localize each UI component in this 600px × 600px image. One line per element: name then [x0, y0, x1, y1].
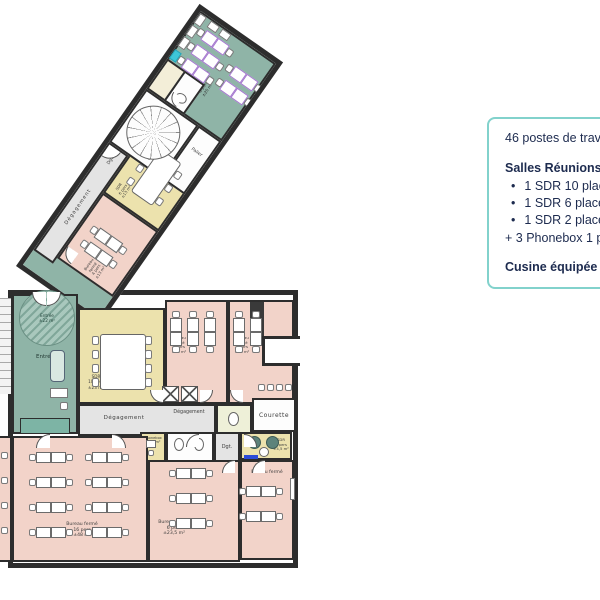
chair [206, 495, 213, 502]
meeting-room-text: 1 SDR 10 places [524, 179, 600, 193]
desk [146, 440, 156, 448]
headline: 46 postes de travail [505, 130, 600, 147]
chair [169, 495, 176, 502]
chair [92, 350, 99, 359]
shaft-box [162, 386, 179, 402]
room-courette: Courette [252, 398, 296, 432]
desk [233, 332, 245, 346]
chair [145, 378, 152, 387]
wing-block: Bureau partagé 8 pers ±25 m² Dégagement … [16, 4, 283, 325]
radiator [290, 478, 295, 500]
chair [276, 513, 283, 520]
palier-label: Palier [182, 142, 210, 164]
chair [122, 454, 129, 461]
chair [29, 454, 36, 461]
chair [29, 529, 36, 536]
toilet [174, 438, 184, 451]
corridor-label: Dégagement [94, 415, 154, 422]
desk [250, 332, 262, 346]
desk [92, 477, 107, 488]
desk [204, 332, 216, 346]
desk [191, 518, 206, 529]
chair [145, 336, 152, 345]
toilet [228, 412, 239, 426]
desk [36, 452, 51, 463]
chair [60, 402, 68, 410]
chair [276, 384, 283, 391]
chair [169, 520, 176, 527]
desk [107, 527, 122, 538]
desk [261, 486, 276, 497]
chair [267, 384, 274, 391]
dgt-label: Dgt. [216, 444, 238, 450]
chair [206, 470, 213, 477]
room-label: Bureau fermé [242, 470, 292, 476]
chair [92, 336, 99, 345]
desk [191, 493, 206, 504]
desk [187, 318, 199, 332]
meeting-room-item: 1 SDR 6 places [505, 195, 600, 212]
chair [122, 529, 129, 536]
chair [1, 452, 8, 459]
meeting-rooms-title: Salles Réunions : [505, 160, 600, 177]
chair [66, 504, 73, 511]
chair [285, 384, 292, 391]
chair [145, 364, 152, 373]
chair [92, 364, 99, 373]
chair [66, 454, 73, 461]
chair [66, 479, 73, 486]
chair [172, 311, 180, 318]
chair [252, 346, 260, 353]
chair [276, 488, 283, 495]
chair [239, 488, 246, 495]
courette-label: Courette [254, 412, 294, 420]
desk [170, 332, 182, 346]
desk [51, 527, 66, 538]
chair [148, 450, 154, 456]
desk [246, 486, 261, 497]
chair [206, 346, 214, 353]
chair [235, 346, 243, 353]
desk [233, 318, 245, 332]
desk [36, 527, 51, 538]
chair [1, 527, 8, 534]
chair [172, 346, 180, 353]
planter [20, 418, 70, 434]
lounge-chair [266, 436, 279, 449]
chair [258, 384, 265, 391]
desk [107, 477, 122, 488]
desk [107, 452, 122, 463]
chair [189, 346, 197, 353]
desk [250, 318, 262, 332]
reception-desk [50, 388, 68, 398]
desk [176, 468, 191, 479]
chair [169, 470, 176, 477]
conference-table [100, 334, 146, 390]
chair [252, 311, 260, 318]
desk [246, 511, 261, 522]
shaft-box [181, 386, 198, 402]
room-office-4: Bureau fermé [240, 460, 294, 560]
chair [235, 311, 243, 318]
chair [92, 378, 99, 387]
chair [206, 311, 214, 318]
desk [187, 332, 199, 346]
building-notch [262, 336, 300, 366]
desk [191, 468, 206, 479]
chair [1, 502, 8, 509]
desk [176, 518, 191, 529]
desk [51, 502, 66, 513]
entrance-zone-label: Entrée ±22 m² [39, 313, 55, 324]
corridor-label: Dégagement [164, 410, 214, 416]
kitchen-note: Cusine équipée [505, 259, 600, 276]
desk [92, 502, 107, 513]
chair [145, 350, 152, 359]
meeting-room-item: 1 SDR 10 places [505, 178, 600, 195]
desk [36, 502, 51, 513]
desk [107, 502, 122, 513]
meeting-rooms-list: 1 SDR 10 places 1 SDR 6 places 1 SDR 2 p… [505, 178, 600, 229]
desk [92, 527, 107, 538]
floor-plan: Bureau partagé 8 pers ±25 m² Dégagement … [0, 0, 600, 600]
chair [85, 479, 92, 486]
desk [51, 452, 66, 463]
desk [204, 318, 216, 332]
chair [85, 529, 92, 536]
chair [29, 479, 36, 486]
meeting-room-item: 1 SDR 2 places [505, 212, 600, 229]
bench [244, 455, 258, 459]
chair [122, 479, 129, 486]
chair [189, 311, 197, 318]
meeting-room-text: 1 SDR 6 places [524, 196, 600, 210]
meeting-room-text: 1 SDR 2 places [524, 213, 600, 227]
small-corridor: Dgt. [214, 432, 240, 462]
chair [85, 504, 92, 511]
phonebox-note: + 3 Phonebox 1 place [505, 230, 600, 247]
chair [85, 454, 92, 461]
chair [239, 513, 246, 520]
sofa [50, 350, 65, 382]
chair [206, 520, 213, 527]
side-table [259, 447, 269, 457]
chair [1, 477, 8, 484]
desk [92, 452, 107, 463]
desk [170, 318, 182, 332]
floorplan-page: Bureau partagé 8 pers ±25 m² Dégagement … [0, 0, 600, 600]
program-summary-panel: 46 postes de travail Salles Réunions : 1… [487, 117, 600, 289]
chair [66, 529, 73, 536]
chair [122, 504, 129, 511]
desk [51, 477, 66, 488]
desk [176, 493, 191, 504]
chair [29, 504, 36, 511]
desk [261, 511, 276, 522]
desk [36, 477, 51, 488]
